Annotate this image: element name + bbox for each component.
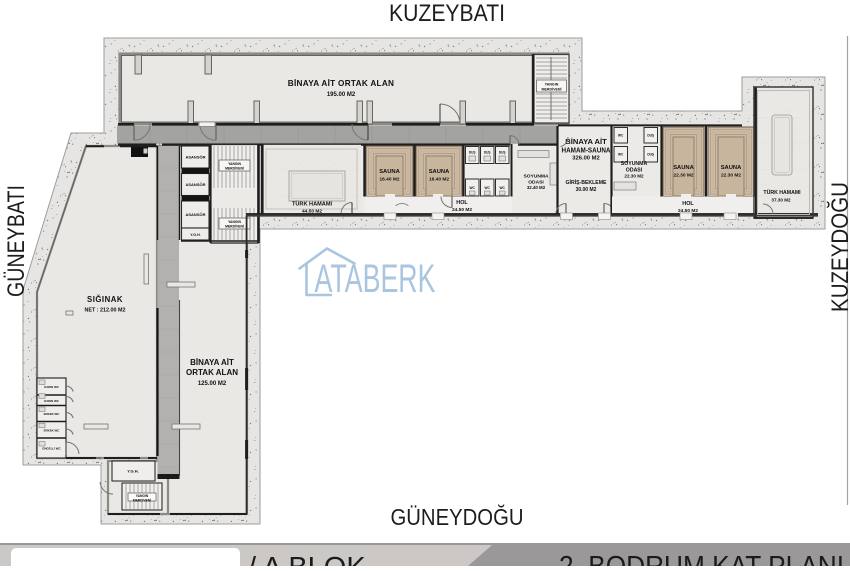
svg-text:SIĞINAK: SIĞINAK (87, 295, 123, 304)
svg-text:KADIN WC: KADIN WC (44, 399, 60, 403)
svg-text:ASANSÖR: ASANSÖR (185, 212, 205, 217)
svg-text:195.00 M2: 195.00 M2 (327, 92, 356, 98)
svg-text:KUZEYBATI: KUZEYBATI (389, 0, 505, 27)
svg-text:ERKEK WC: ERKEK WC (44, 412, 61, 416)
svg-text:22.30 M2: 22.30 M2 (624, 174, 644, 179)
svg-text:ENGELLİ WC: ENGELLİ WC (42, 447, 61, 451)
svg-text:Y.G.H.: Y.G.H. (190, 233, 200, 237)
svg-text:DUŞ: DUŞ (647, 153, 654, 157)
svg-text:ERKEK WC: ERKEK WC (44, 428, 61, 432)
svg-text:BİNAYA AİT: BİNAYA AİT (190, 358, 234, 367)
svg-text:16.40 M2: 16.40 M2 (429, 176, 449, 182)
svg-text:WC: WC (485, 186, 491, 190)
svg-text:ORTAK ALAN: ORTAK ALAN (186, 368, 238, 377)
svg-text:125.00 M2: 125.00 M2 (198, 381, 227, 387)
svg-text:NET : 212.00 M2: NET : 212.00 M2 (84, 308, 125, 314)
svg-text:MERDİVENİ: MERDİVENİ (542, 88, 562, 92)
svg-text:DUŞ: DUŞ (647, 134, 654, 138)
svg-text:HOL: HOL (682, 201, 694, 207)
svg-text:YANGIN: YANGIN (228, 162, 241, 166)
svg-text:KUZEYDOĞU: KUZEYDOĞU (827, 182, 850, 312)
svg-text:GÜNEYBATI: GÜNEYBATI (3, 185, 30, 297)
svg-text:TÜRK HAMAMI: TÜRK HAMAMI (292, 201, 333, 208)
svg-text:BİNAYA AİT ORTAK ALAN: BİNAYA AİT ORTAK ALAN (288, 78, 395, 88)
svg-text:Y.G.H.: Y.G.H. (127, 469, 139, 474)
svg-text:WC: WC (618, 153, 624, 157)
svg-text:YANGIN: YANGIN (545, 83, 559, 87)
svg-text:MERDİVENİ: MERDİVENİ (225, 167, 244, 171)
svg-text:30.00 M2: 30.00 M2 (576, 187, 597, 193)
svg-text:2. BODRUM KAT PLANI: 2. BODRUM KAT PLANI (559, 551, 844, 566)
svg-text:GİRİŞ-BEKLEME: GİRİŞ-BEKLEME (566, 179, 607, 186)
svg-text:ASANSÖR: ASANSÖR (185, 182, 205, 187)
svg-text:DUŞ: DUŞ (484, 151, 491, 155)
svg-text:SAUNA: SAUNA (429, 169, 450, 175)
svg-text:/ A BLOK: / A BLOK (248, 552, 366, 566)
svg-text:24.50 M2: 24.50 M2 (452, 207, 472, 213)
svg-text:16.40 M2: 16.40 M2 (379, 176, 399, 182)
svg-text:MERDİVENİ: MERDİVENİ (225, 225, 244, 229)
svg-text:HOL: HOL (456, 200, 468, 206)
svg-text:32.40 M2: 32.40 M2 (527, 185, 546, 190)
svg-text:WC: WC (618, 134, 624, 138)
svg-text:HAMAM-SAUNA: HAMAM-SAUNA (562, 146, 611, 155)
svg-text:TÜRK HAMAMI: TÜRK HAMAMI (763, 189, 801, 196)
svg-text:DUŞ: DUŞ (499, 151, 506, 155)
svg-text:326.00 M2: 326.00 M2 (572, 156, 599, 162)
svg-text:DUŞ: DUŞ (469, 151, 476, 155)
svg-text:SAUNA: SAUNA (379, 169, 400, 175)
svg-text:KADIN WC: KADIN WC (44, 385, 60, 389)
svg-text:SAUNA: SAUNA (721, 165, 742, 171)
svg-text:YANGIN: YANGIN (228, 220, 241, 224)
svg-text:SOYUNMA: SOYUNMA (524, 174, 549, 180)
svg-text:WC: WC (500, 186, 506, 190)
svg-text:22.30 M2: 22.30 M2 (721, 173, 741, 179)
svg-text:ATABERK: ATABERK (315, 257, 436, 301)
svg-text:MERDİVENİ: MERDİVENİ (133, 499, 151, 503)
svg-text:WC: WC (470, 186, 476, 190)
svg-text:37.30 M2: 37.30 M2 (771, 198, 791, 203)
svg-text:GÜNEYDOĞU: GÜNEYDOĞU (391, 504, 524, 530)
svg-text:ASANSÖR: ASANSÖR (185, 155, 205, 160)
svg-text:22.30 M2: 22.30 M2 (673, 173, 693, 179)
svg-text:YANGIN: YANGIN (136, 494, 149, 498)
svg-text:SAUNA: SAUNA (673, 165, 694, 171)
svg-text:SOYUNMA: SOYUNMA (621, 161, 648, 167)
